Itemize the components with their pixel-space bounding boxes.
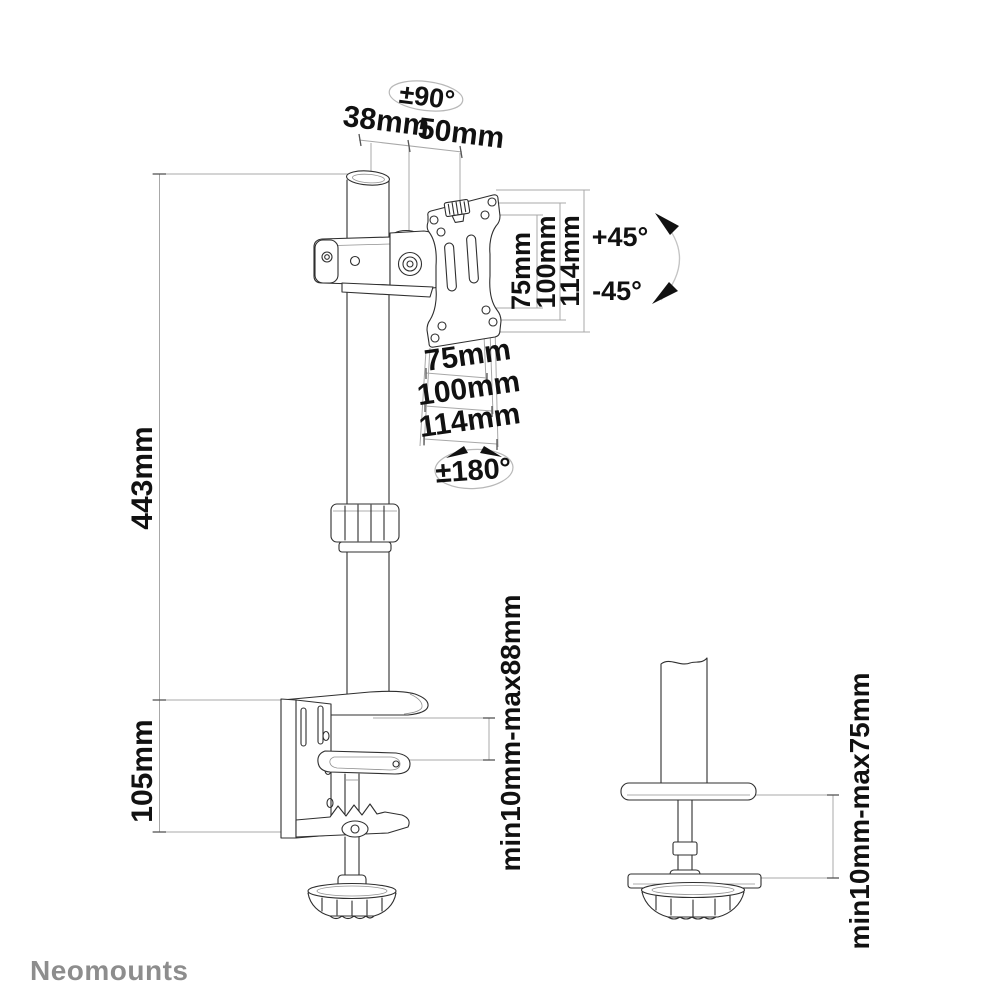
label-clamp-height: 105mm <box>126 719 159 822</box>
desk-clamp <box>281 691 428 918</box>
swivel-head-assembly <box>314 231 443 298</box>
grommet-top-plate <box>621 783 756 800</box>
tilt-up-arrowhead <box>655 213 679 235</box>
grommet-pole-stub <box>661 658 707 786</box>
label-clamp-thickness: min10mm-max88mm <box>495 594 526 871</box>
label-vesa-v114: 114mm <box>555 215 585 307</box>
label-tilt-up: +45° <box>592 222 649 252</box>
product-dimension-page: ±90° 38mm 50mm +45° -45° 75mm 100mm 114m… <box>0 0 1004 1004</box>
tilt-down-arrowhead <box>652 282 678 304</box>
label-pole-height: 443mm <box>126 426 159 529</box>
label-tilt-down: -45° <box>592 276 642 306</box>
clamp-knob <box>308 884 396 919</box>
grommet-knob <box>642 883 745 920</box>
grommet-mount <box>621 658 761 919</box>
grommet-thickness-dimension <box>751 795 839 878</box>
height-adjustment-ring <box>331 504 399 552</box>
brand-logo: Neomounts <box>30 955 189 986</box>
clamp-pad <box>318 751 410 774</box>
label-vesa-rotation: ±180° <box>434 452 512 489</box>
label-grommet-thickness: min10mm-max75mm <box>844 672 875 949</box>
jaw-washer <box>342 821 368 837</box>
tilt-bolt <box>399 253 422 276</box>
vesa-plate <box>427 195 501 347</box>
label-arm-offset: 50mm <box>416 112 506 155</box>
monitor-mount-dimension-diagram: ±90° 38mm 50mm +45° -45° 75mm 100mm 114m… <box>0 0 1004 1004</box>
